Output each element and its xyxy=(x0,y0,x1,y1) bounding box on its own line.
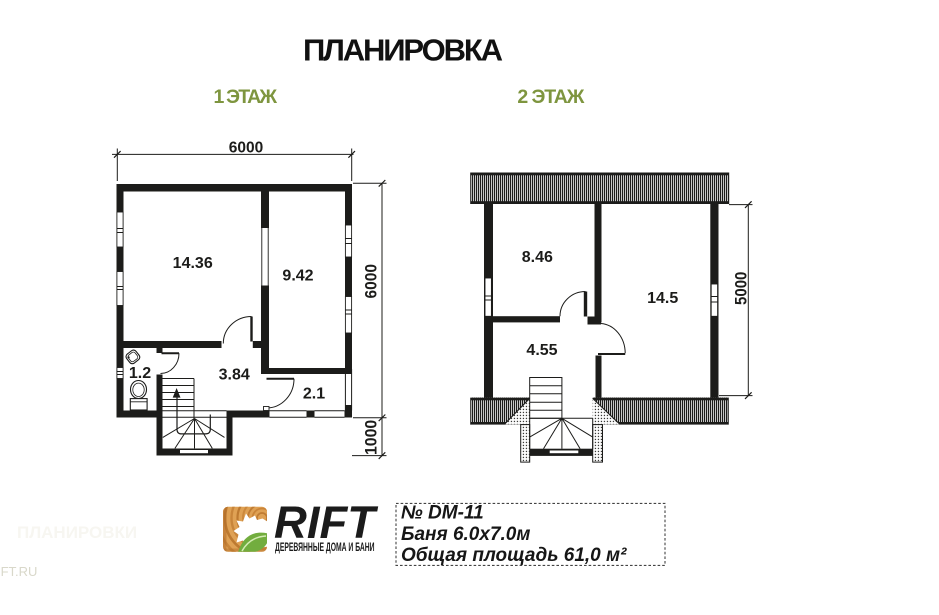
svg-text:5000: 5000 xyxy=(732,272,750,305)
svg-text:14.36: 14.36 xyxy=(173,255,213,272)
svg-text:№ DM-11: № DM-11 xyxy=(401,503,484,524)
svg-text:4.55: 4.55 xyxy=(526,342,557,359)
svg-text:9.42: 9.42 xyxy=(282,268,313,285)
svg-text:IFT.RU: IFT.RU xyxy=(0,564,37,579)
svg-text:3.84: 3.84 xyxy=(219,366,250,383)
svg-text:ДЕРЕВЯННЫЕ ДОМА И БАНИ: ДЕРЕВЯННЫЕ ДОМА И БАНИ xyxy=(275,542,375,554)
svg-text:2.1: 2.1 xyxy=(303,385,325,402)
svg-text:1000: 1000 xyxy=(362,420,380,455)
svg-text:Общая площадь 61,0 м²: Общая площадь 61,0 м² xyxy=(401,545,627,566)
svg-text:6000: 6000 xyxy=(362,264,380,299)
svg-text:ПЛАНИРОВКИ: ПЛАНИРОВКИ xyxy=(17,523,137,542)
svg-text:8.46: 8.46 xyxy=(522,249,553,266)
svg-text:ПЛАНИРОВКА: ПЛАНИРОВКА xyxy=(303,33,503,68)
svg-text:14.5: 14.5 xyxy=(647,290,678,307)
svg-text:1 ЭТАЖ: 1 ЭТАЖ xyxy=(214,86,278,108)
svg-text:1.2: 1.2 xyxy=(129,365,151,382)
svg-text:Баня 6.0х7.0м: Баня 6.0х7.0м xyxy=(401,524,530,545)
svg-text:6000: 6000 xyxy=(229,140,263,157)
svg-text:2 ЭТАЖ: 2 ЭТАЖ xyxy=(517,86,584,108)
svg-text:RIFT: RIFT xyxy=(274,497,379,548)
